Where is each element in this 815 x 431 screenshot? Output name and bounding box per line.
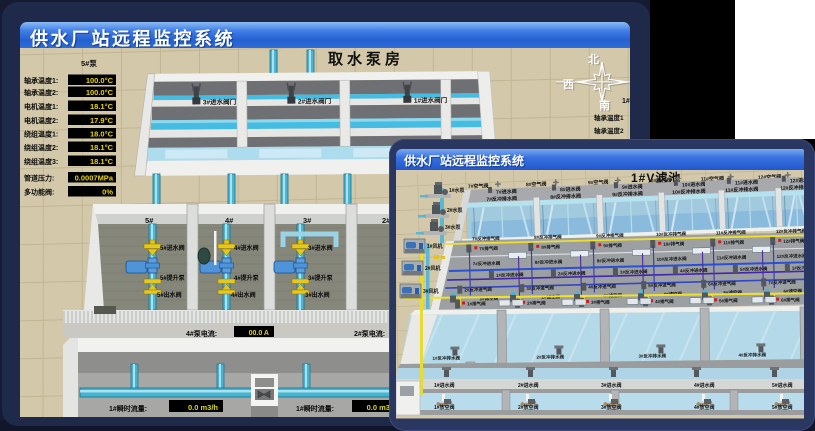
svg-text:取水泵房: 取水泵房 — [328, 50, 404, 68]
svg-text:4#进水阀: 4#进水阀 — [694, 382, 715, 389]
svg-text:7#空气阀: 7#空气阀 — [468, 182, 489, 190]
svg-text:12#进水阀: 12#进水阀 — [790, 177, 804, 185]
svg-text:2#水泵: 2#水泵 — [447, 207, 464, 214]
svg-text:0.0007MPa: 0.0007MPa — [75, 174, 114, 183]
svg-text:西: 西 — [563, 78, 574, 91]
svg-text:3#放空阀: 3#放空阀 — [601, 404, 622, 411]
svg-text:4#泵电流:: 4#泵电流: — [186, 329, 217, 338]
svg-text:8#进水阀: 8#进水阀 — [560, 186, 581, 194]
svg-text:5#提升泵: 5#提升泵 — [160, 274, 186, 282]
svg-text:5#进水阀: 5#进水阀 — [772, 382, 793, 389]
svg-text:南: 南 — [599, 98, 610, 112]
svg-text:00.0 A: 00.0 A — [249, 330, 269, 337]
svg-text:17.9°C: 17.9°C — [90, 116, 114, 125]
svg-text:北: 北 — [588, 52, 599, 66]
svg-text:轴承温度2:: 轴承温度2: — [24, 88, 58, 97]
svg-text:4#放空阀: 4#放空阀 — [694, 404, 715, 411]
svg-text:3#风机: 3#风机 — [423, 288, 439, 295]
svg-text:4#出水阀: 4#出水阀 — [231, 291, 256, 299]
svg-text:10#进水阀: 10#进水阀 — [682, 181, 706, 189]
svg-text:5#出水阀: 5#出水阀 — [157, 291, 182, 299]
svg-text:1#进水阀: 1#进水阀 — [434, 382, 455, 389]
svg-text:轴承温度1: 轴承温度1 — [594, 113, 624, 122]
svg-text:0.0 m3/h: 0.0 m3/h — [188, 403, 218, 412]
svg-text:0%: 0% — [102, 188, 113, 197]
svg-text:管道压力:: 管道压力: — [24, 174, 54, 183]
svg-text:100.0°C: 100.0°C — [86, 88, 114, 97]
svg-text:11#进水阀: 11#进水阀 — [735, 179, 758, 187]
svg-text:1#瞬时流量:: 1#瞬时流量: — [296, 404, 334, 413]
svg-text:2#进水阀: 2#进水阀 — [518, 382, 539, 389]
svg-text:4#提升泵: 4#提升泵 — [234, 274, 260, 282]
svg-text:2#泵电流:: 2#泵电流: — [354, 329, 385, 338]
svg-text:1#风机: 1#风机 — [427, 243, 443, 250]
svg-text:绕组温度2:: 绕组温度2: — [24, 143, 58, 152]
svg-text:绕组温度3:: 绕组温度3: — [24, 157, 58, 166]
svg-text:3#出水阀: 3#出水阀 — [305, 291, 330, 299]
svg-text:18.1°C: 18.1°C — [90, 143, 114, 152]
svg-text:轴承温度1:: 轴承温度1: — [24, 76, 58, 85]
svg-text:3#水泵: 3#水泵 — [445, 224, 462, 231]
svg-text:绕组温度1:: 绕组温度1: — [24, 130, 58, 139]
svg-text:2#进水阀门: 2#进水阀门 — [298, 96, 332, 105]
svg-text:1#进水阀门: 1#进水阀门 — [414, 95, 448, 104]
svg-text:18.1°C: 18.1°C — [90, 157, 114, 166]
svg-text:5#放空阀: 5#放空阀 — [772, 404, 793, 411]
svg-text:5#泵: 5#泵 — [81, 59, 97, 68]
svg-text:18.0°C: 18.0°C — [90, 130, 114, 139]
svg-text:2#风机: 2#风机 — [425, 265, 441, 272]
svg-text:2#放空阀: 2#放空阀 — [518, 404, 539, 411]
svg-text:7#进水阀: 7#进水阀 — [496, 188, 517, 196]
svg-text:3#进水阀: 3#进水阀 — [308, 244, 333, 252]
svg-text:电机温度2:: 电机温度2: — [24, 116, 58, 125]
svg-text:1#瞬时流量:: 1#瞬时流量: — [109, 404, 147, 413]
svg-text:1#水泵: 1#水泵 — [449, 187, 466, 194]
svg-text:9#进水阀: 9#进水阀 — [622, 183, 643, 191]
svg-text:4#进水阀: 4#进水阀 — [234, 244, 259, 252]
svg-text:1#: 1# — [622, 98, 630, 105]
svg-text:3#进水阀门: 3#进水阀门 — [203, 97, 237, 106]
svg-text:3#进水阀: 3#进水阀 — [601, 382, 622, 389]
svg-text:18.1°C: 18.1°C — [90, 102, 114, 111]
svg-text:电机温度1:: 电机温度1: — [24, 102, 58, 111]
svg-text:1#放空阀: 1#放空阀 — [434, 404, 455, 411]
svg-text:100.0°C: 100.0°C — [86, 76, 114, 85]
svg-text:多功能阀:: 多功能阀: — [24, 188, 54, 197]
svg-text:3#提升泵: 3#提升泵 — [308, 274, 334, 282]
svg-text:5#进水阀: 5#进水阀 — [160, 244, 185, 252]
svg-text:轴承温度2: 轴承温度2 — [594, 126, 624, 135]
